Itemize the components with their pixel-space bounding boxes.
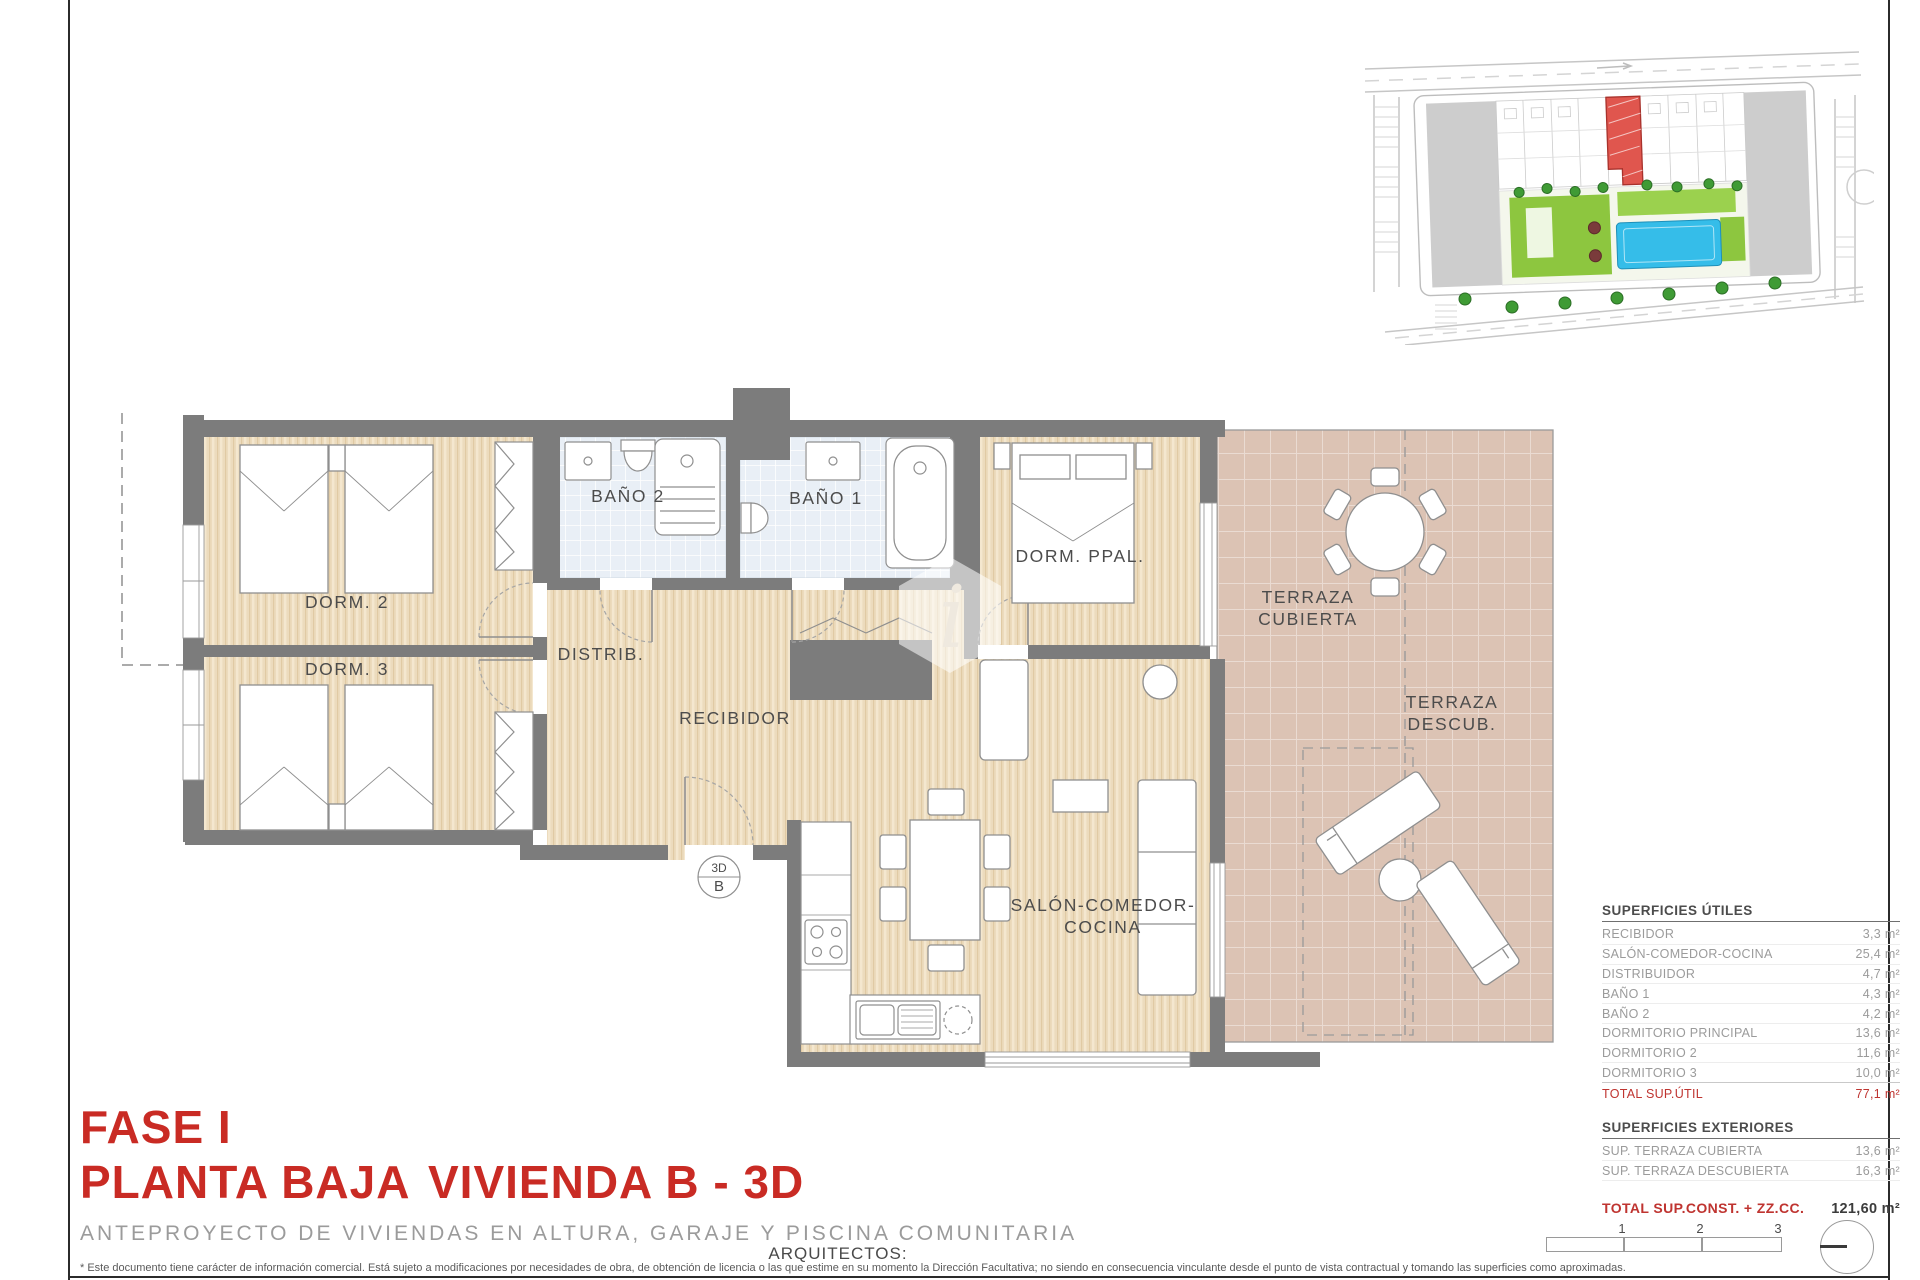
label-dorm-ppal: DORM. PPAL. [1015,546,1144,566]
row-value: 13,6 m² [1856,1026,1900,1040]
row-label: SUP. TERRAZA CUBIERTA [1602,1144,1762,1158]
table-row: RECIBIDOR3,3 m² [1602,925,1900,945]
neighbour-boundary-dashed [122,413,183,665]
fase-title: FASE I [80,1100,232,1154]
row-label: DORMITORIO 2 [1602,1046,1697,1060]
row-value: 4,7 m² [1863,967,1900,981]
floor-plan: i 3D B DORM. 2 DORM. 3 BAÑO 2 BAÑO 1 DOR… [100,375,1580,1075]
scale-label-2: 2 [1696,1221,1703,1236]
site-building-right [1744,90,1812,276]
site-garden [1499,182,1750,285]
orientation-symbol [1820,1220,1874,1274]
disclaimer-text: * Este documento tiene carácter de infor… [80,1262,1626,1274]
label-bano1: BAÑO 1 [789,487,863,508]
scale-bar: 1 2 3 [1546,1237,1780,1250]
areas-panel: SUPERFICIES ÚTILES RECIBIDOR3,3 m² SALÓN… [1602,903,1900,1219]
row-value: 10,0 m² [1856,1066,1900,1080]
label-bano2: BAÑO 2 [591,485,665,506]
total-const-row: TOTAL SUP.CONST. + ZZ.CC. 121,60 m² [1602,1197,1900,1219]
label-salon-line1: SALÓN-COMEDOR- [1011,894,1196,915]
drawing-sheet: i 3D B DORM. 2 DORM. 3 BAÑO 2 BAÑO 1 DOR… [0,0,1920,1280]
scale-bar-body [1546,1237,1782,1252]
marker-b-label: B [714,878,724,895]
table-row: BAÑO 24,2 m² [1602,1004,1900,1024]
exteriores-title: SUPERFICIES EXTERIORES [1602,1120,1900,1139]
furniture-dorm-ppal [994,443,1152,603]
table-row: BAÑO 14,3 m² [1602,984,1900,1004]
row-value: 4,2 m² [1863,1007,1900,1021]
utiles-title: SUPERFICIES ÚTILES [1602,903,1900,922]
terrace-side-table [1379,859,1421,901]
total-const-label: TOTAL SUP.CONST. + ZZ.CC. [1602,1200,1804,1216]
row-label: TOTAL SUP.ÚTIL [1602,1087,1703,1101]
row-value: 77,1 m² [1856,1087,1900,1101]
table-row: DORMITORIO PRINCIPAL13,6 m² [1602,1024,1900,1044]
row-value: 4,3 m² [1863,987,1900,1001]
scale-tick [1701,1238,1703,1251]
table-row: DORMITORIO 310,0 m² [1602,1063,1900,1083]
label-dorm2: DORM. 2 [305,592,389,612]
row-value: 13,6 m² [1856,1144,1900,1158]
project-subtitle: ANTEPROYECTO DE VIVIENDAS EN ALTURA, GAR… [80,1222,1077,1246]
label-recibidor: RECIBIDOR [679,708,791,728]
marker-3d-label: 3D [711,861,727,875]
row-label: BAÑO 1 [1602,987,1650,1001]
sheet-border-bottom [68,1276,1890,1278]
label-terraza-cubierta-2: CUBIERTA [1258,609,1358,629]
total-const-value: 121,60 m² [1831,1201,1900,1217]
label-salon-line2: COCINA [1064,917,1142,937]
label-terraza-descub-1: TERRAZA [1406,692,1499,712]
planta-title: PLANTA BAJA [80,1155,410,1209]
sheet-border-left [68,0,70,1280]
row-label: DORMITORIO PRINCIPAL [1602,1026,1758,1040]
label-terraza-descub-2: DESCUB. [1408,714,1497,734]
site-plan-block [1414,82,1821,296]
row-value: 16,3 m² [1856,1164,1900,1178]
architects-label: ARQUITECTOS: [678,1244,998,1264]
site-plan [1347,37,1874,345]
scale-label-1: 1 [1618,1221,1625,1236]
label-dorm3: DORM. 3 [305,659,389,679]
scale-tick [1623,1238,1625,1251]
row-label: DORMITORIO 3 [1602,1066,1697,1080]
outside-cut [520,860,787,1052]
row-label: SUP. TERRAZA DESCUBIERTA [1602,1164,1789,1178]
row-value: 25,4 m² [1856,947,1900,961]
site-building-left [1426,101,1502,287]
label-distrib: DISTRIB. [558,644,645,664]
row-label: DISTRIBUIDOR [1602,967,1695,981]
row-label: BAÑO 2 [1602,1007,1650,1021]
row-label: RECIBIDOR [1602,927,1674,941]
table-row: SALÓN-COMEDOR-COCINA25,4 m² [1602,945,1900,965]
table-row: SUP. TERRAZA DESCUBIERTA16,3 m² [1602,1161,1900,1181]
table-row: SUP. TERRAZA CUBIERTA13,6 m² [1602,1142,1900,1162]
entrance-marker: 3D B [698,856,740,898]
row-label: SALÓN-COMEDOR-COCINA [1602,947,1773,961]
total-util-row: TOTAL SUP.ÚTIL77,1 m² [1602,1083,1900,1103]
watermark-glyph: i [938,568,966,668]
row-value: 3,3 m² [1863,927,1900,941]
row-value: 11,6 m² [1856,1046,1900,1060]
table-row: DISTRIBUIDOR4,7 m² [1602,965,1900,985]
table-row: DORMITORIO 211,6 m² [1602,1044,1900,1064]
scale-label-3: 3 [1774,1221,1781,1236]
label-terraza-cubierta-1: TERRAZA [1262,587,1355,607]
vivienda-title: VIVIENDA B - 3D [428,1155,804,1209]
orientation-needle [1820,1245,1847,1248]
